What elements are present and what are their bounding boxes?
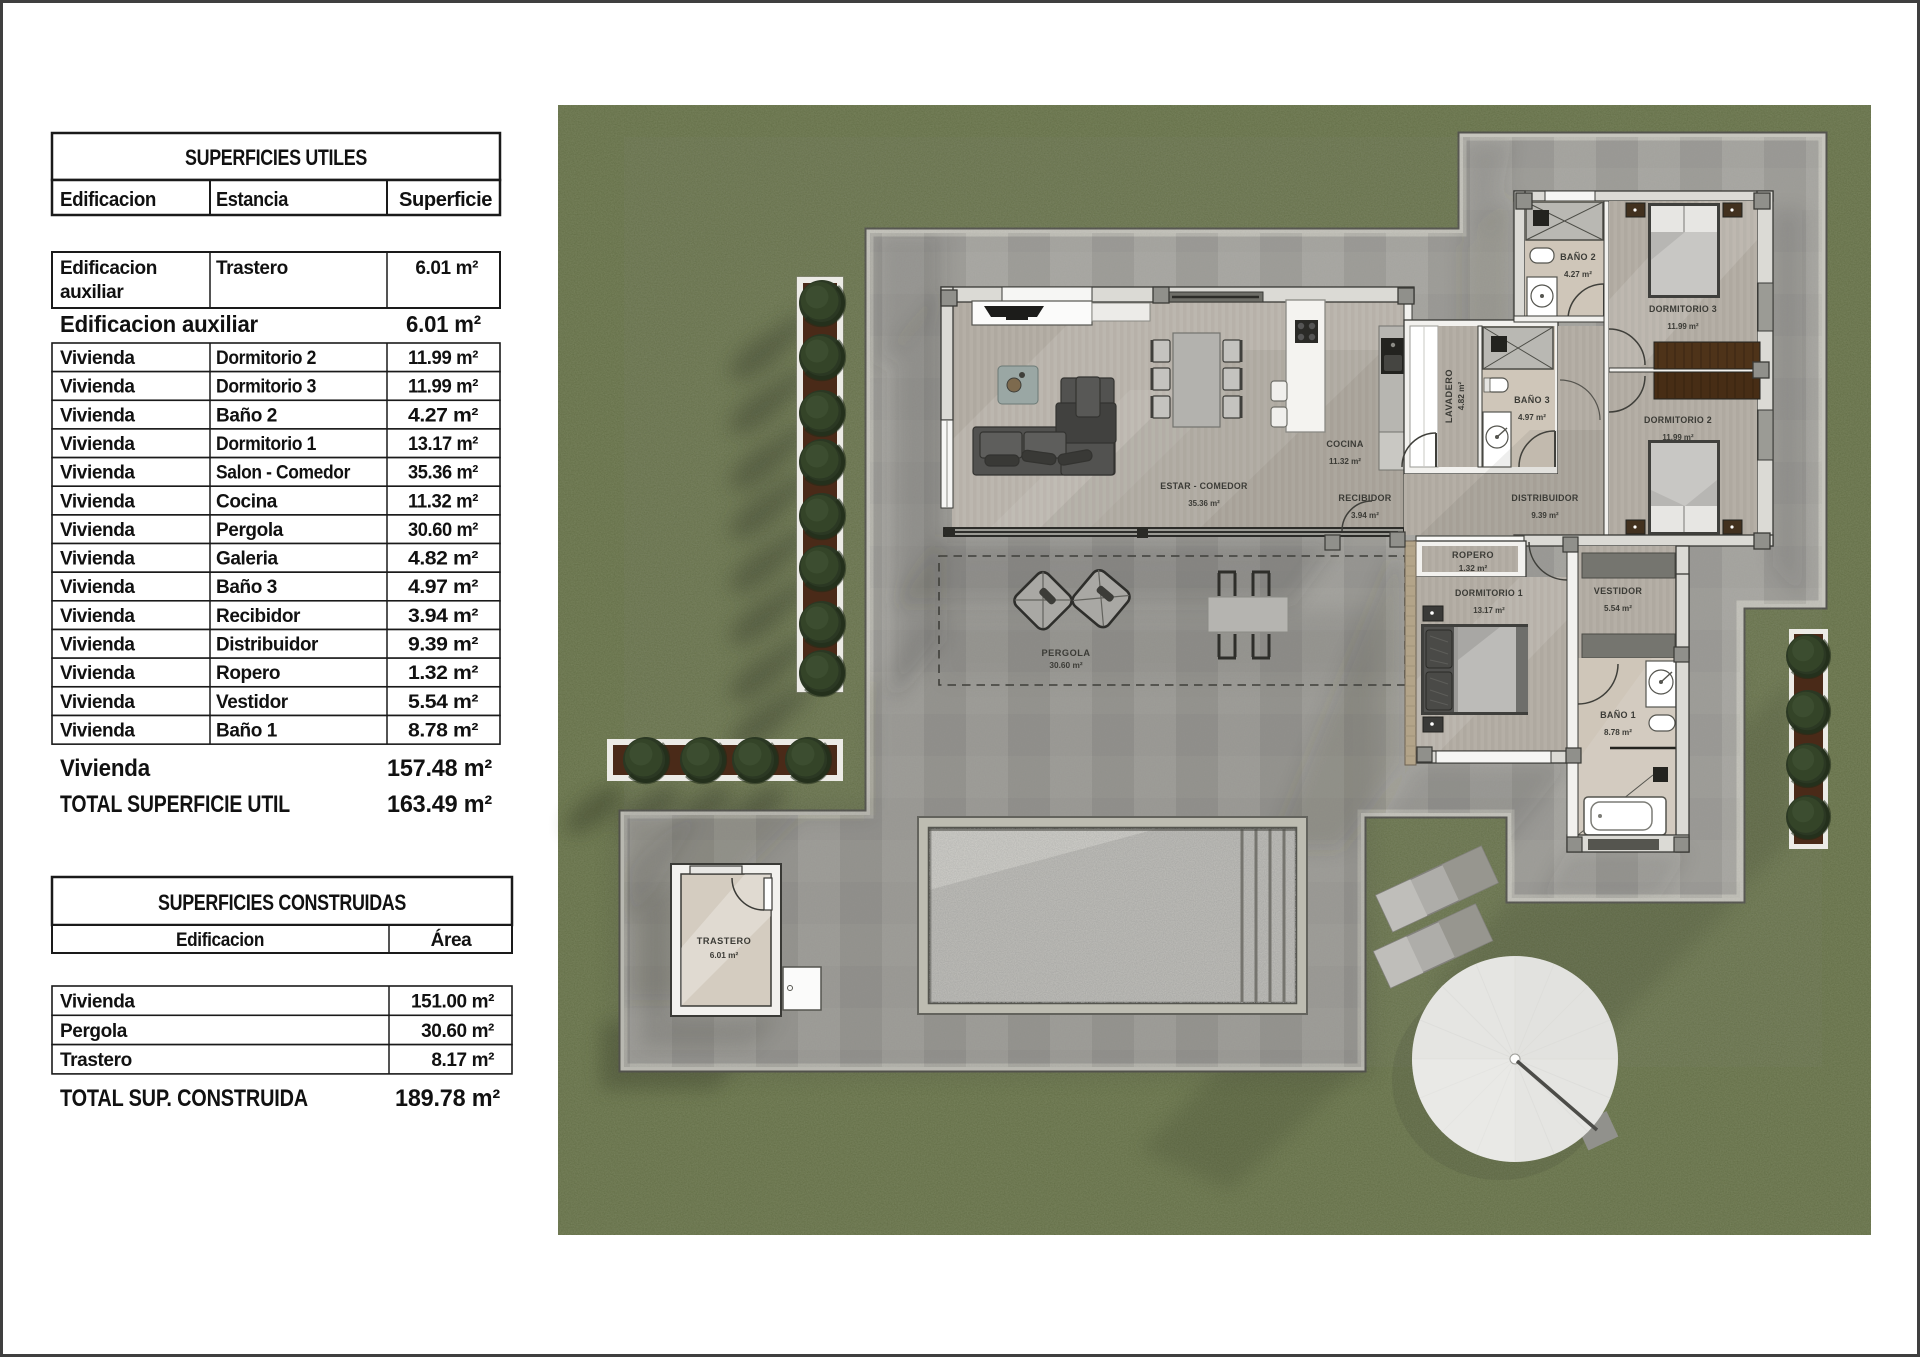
svg-text:1.32 m²: 1.32 m² xyxy=(408,663,478,684)
svg-text:Trastero: Trastero xyxy=(216,258,288,279)
svg-text:6.01 m²: 6.01 m² xyxy=(406,311,482,337)
svg-text:5.54 m²: 5.54 m² xyxy=(408,692,478,713)
svg-text:Galeria: Galeria xyxy=(216,549,278,570)
svg-text:VESTIDOR: VESTIDOR xyxy=(1594,586,1643,596)
svg-text:Vivienda: Vivienda xyxy=(60,755,151,782)
svg-text:Trastero: Trastero xyxy=(60,1050,132,1071)
svg-text:35.36 m²: 35.36 m² xyxy=(408,463,478,484)
svg-text:4.82 m²: 4.82 m² xyxy=(1456,381,1466,410)
svg-text:ROPERO: ROPERO xyxy=(1452,550,1494,560)
svg-text:Salon - Comedor: Salon - Comedor xyxy=(216,463,351,484)
svg-text:Superficie: Superficie xyxy=(399,189,492,211)
svg-text:Vivienda: Vivienda xyxy=(60,549,135,570)
svg-text:151.00 m²: 151.00 m² xyxy=(411,992,494,1013)
svg-text:4.27 m²: 4.27 m² xyxy=(408,405,478,426)
svg-text:6.01 m²: 6.01 m² xyxy=(710,950,739,960)
svg-text:TOTAL SUP. CONSTRUIDA: TOTAL SUP. CONSTRUIDA xyxy=(60,1085,308,1112)
svg-text:DORMITORIO 2: DORMITORIO 2 xyxy=(1644,415,1712,425)
svg-text:Dormitorio 2: Dormitorio 2 xyxy=(216,348,316,369)
svg-text:LAVADERO: LAVADERO xyxy=(1444,369,1454,423)
svg-text:Dormitorio 3: Dormitorio 3 xyxy=(216,377,316,398)
svg-text:11.99 m²: 11.99 m² xyxy=(408,348,478,369)
svg-text:Vivienda: Vivienda xyxy=(60,606,135,627)
svg-text:Vivienda: Vivienda xyxy=(60,520,135,541)
svg-text:Ropero: Ropero xyxy=(216,663,280,684)
svg-text:Baño 2: Baño 2 xyxy=(216,405,277,426)
svg-text:Cocina: Cocina xyxy=(216,491,278,512)
svg-text:Edificacion: Edificacion xyxy=(60,189,156,211)
svg-text:Vivienda: Vivienda xyxy=(60,348,135,369)
svg-text:DISTRIBUIDOR: DISTRIBUIDOR xyxy=(1511,493,1578,503)
svg-text:30.60 m²: 30.60 m² xyxy=(1049,660,1082,670)
svg-text:5.54 m²: 5.54 m² xyxy=(1604,604,1632,613)
svg-text:BAÑO 2: BAÑO 2 xyxy=(1560,252,1596,262)
svg-text:Estancia: Estancia xyxy=(216,189,289,211)
svg-text:Vestidor: Vestidor xyxy=(216,692,289,713)
svg-text:Pergola: Pergola xyxy=(216,520,284,541)
svg-text:189.78 m²: 189.78 m² xyxy=(395,1085,500,1112)
svg-text:157.48 m²: 157.48 m² xyxy=(387,755,492,782)
svg-text:Distribuidor: Distribuidor xyxy=(216,635,319,656)
svg-text:Edificacion: Edificacion xyxy=(176,930,264,951)
svg-text:Vivienda: Vivienda xyxy=(60,377,135,398)
svg-text:Vivienda: Vivienda xyxy=(60,692,135,713)
svg-text:11.32 m²: 11.32 m² xyxy=(408,491,478,512)
svg-text:Baño 3: Baño 3 xyxy=(216,577,277,598)
svg-text:Dormitorio 1: Dormitorio 1 xyxy=(216,434,317,455)
svg-text:Edificacion: Edificacion xyxy=(60,258,157,279)
svg-text:TOTAL SUPERFICIE UTIL: TOTAL SUPERFICIE UTIL xyxy=(60,791,290,818)
svg-text:BAÑO 1: BAÑO 1 xyxy=(1600,710,1636,720)
svg-text:Pergola: Pergola xyxy=(60,1021,128,1042)
svg-text:13.17 m²: 13.17 m² xyxy=(408,434,478,455)
svg-text:Vivienda: Vivienda xyxy=(60,491,135,512)
svg-text:8.78 m²: 8.78 m² xyxy=(1604,728,1632,737)
svg-text:11.99 m²: 11.99 m² xyxy=(1667,322,1699,331)
svg-text:4.27 m²: 4.27 m² xyxy=(1564,270,1592,279)
svg-text:163.49 m²: 163.49 m² xyxy=(387,791,492,818)
svg-text:TRASTERO: TRASTERO xyxy=(697,936,752,946)
svg-text:35.36 m²: 35.36 m² xyxy=(1188,499,1220,508)
svg-text:8.17 m²: 8.17 m² xyxy=(431,1050,494,1071)
svg-text:Vivienda: Vivienda xyxy=(60,635,135,656)
svg-text:Vivienda: Vivienda xyxy=(60,720,135,741)
svg-text:auxiliar: auxiliar xyxy=(60,282,124,303)
svg-text:1.32 m²: 1.32 m² xyxy=(1459,563,1488,573)
svg-text:3.94 m²: 3.94 m² xyxy=(1351,511,1379,520)
svg-text:11.99 m²: 11.99 m² xyxy=(408,377,478,398)
svg-text:SUPERFICIES CONSTRUIDAS: SUPERFICIES CONSTRUIDAS xyxy=(158,890,406,915)
svg-text:SUPERFICIES UTILES: SUPERFICIES UTILES xyxy=(185,145,367,170)
svg-text:4.97 m²: 4.97 m² xyxy=(408,577,478,598)
svg-text:30.60 m²: 30.60 m² xyxy=(421,1021,494,1042)
svg-text:Vivienda: Vivienda xyxy=(60,577,135,598)
svg-text:4.82 m²: 4.82 m² xyxy=(408,549,478,570)
svg-text:Vivienda: Vivienda xyxy=(60,663,135,684)
svg-text:DORMITORIO 1: DORMITORIO 1 xyxy=(1455,588,1523,598)
svg-text:Recibidor: Recibidor xyxy=(216,606,301,627)
svg-text:3.94 m²: 3.94 m² xyxy=(408,606,478,627)
svg-text:PERGOLA: PERGOLA xyxy=(1042,648,1091,658)
svg-text:30.60 m²: 30.60 m² xyxy=(408,520,478,541)
svg-text:Vivienda: Vivienda xyxy=(60,992,135,1013)
svg-text:11.32 m²: 11.32 m² xyxy=(1329,457,1361,466)
svg-text:8.78 m²: 8.78 m² xyxy=(408,720,478,741)
svg-text:Área: Área xyxy=(431,929,472,951)
svg-text:Vivienda: Vivienda xyxy=(60,434,135,455)
svg-text:9.39 m²: 9.39 m² xyxy=(408,635,478,656)
svg-text:Edificacion auxiliar: Edificacion auxiliar xyxy=(60,311,258,337)
svg-text:Vivienda: Vivienda xyxy=(60,463,135,484)
svg-text:DORMITORIO 3: DORMITORIO 3 xyxy=(1649,304,1717,314)
svg-text:Baño 1: Baño 1 xyxy=(216,720,278,741)
svg-text:4.97 m²: 4.97 m² xyxy=(1518,413,1546,422)
svg-text:13.17 m²: 13.17 m² xyxy=(1473,606,1505,615)
svg-text:6.01 m²: 6.01 m² xyxy=(415,258,478,279)
svg-text:9.39 m²: 9.39 m² xyxy=(1531,511,1559,520)
svg-text:COCINA: COCINA xyxy=(1326,439,1363,449)
svg-text:BAÑO 3: BAÑO 3 xyxy=(1514,395,1550,405)
svg-text:Vivienda: Vivienda xyxy=(60,405,135,426)
svg-text:ESTAR - COMEDOR: ESTAR - COMEDOR xyxy=(1160,481,1248,491)
